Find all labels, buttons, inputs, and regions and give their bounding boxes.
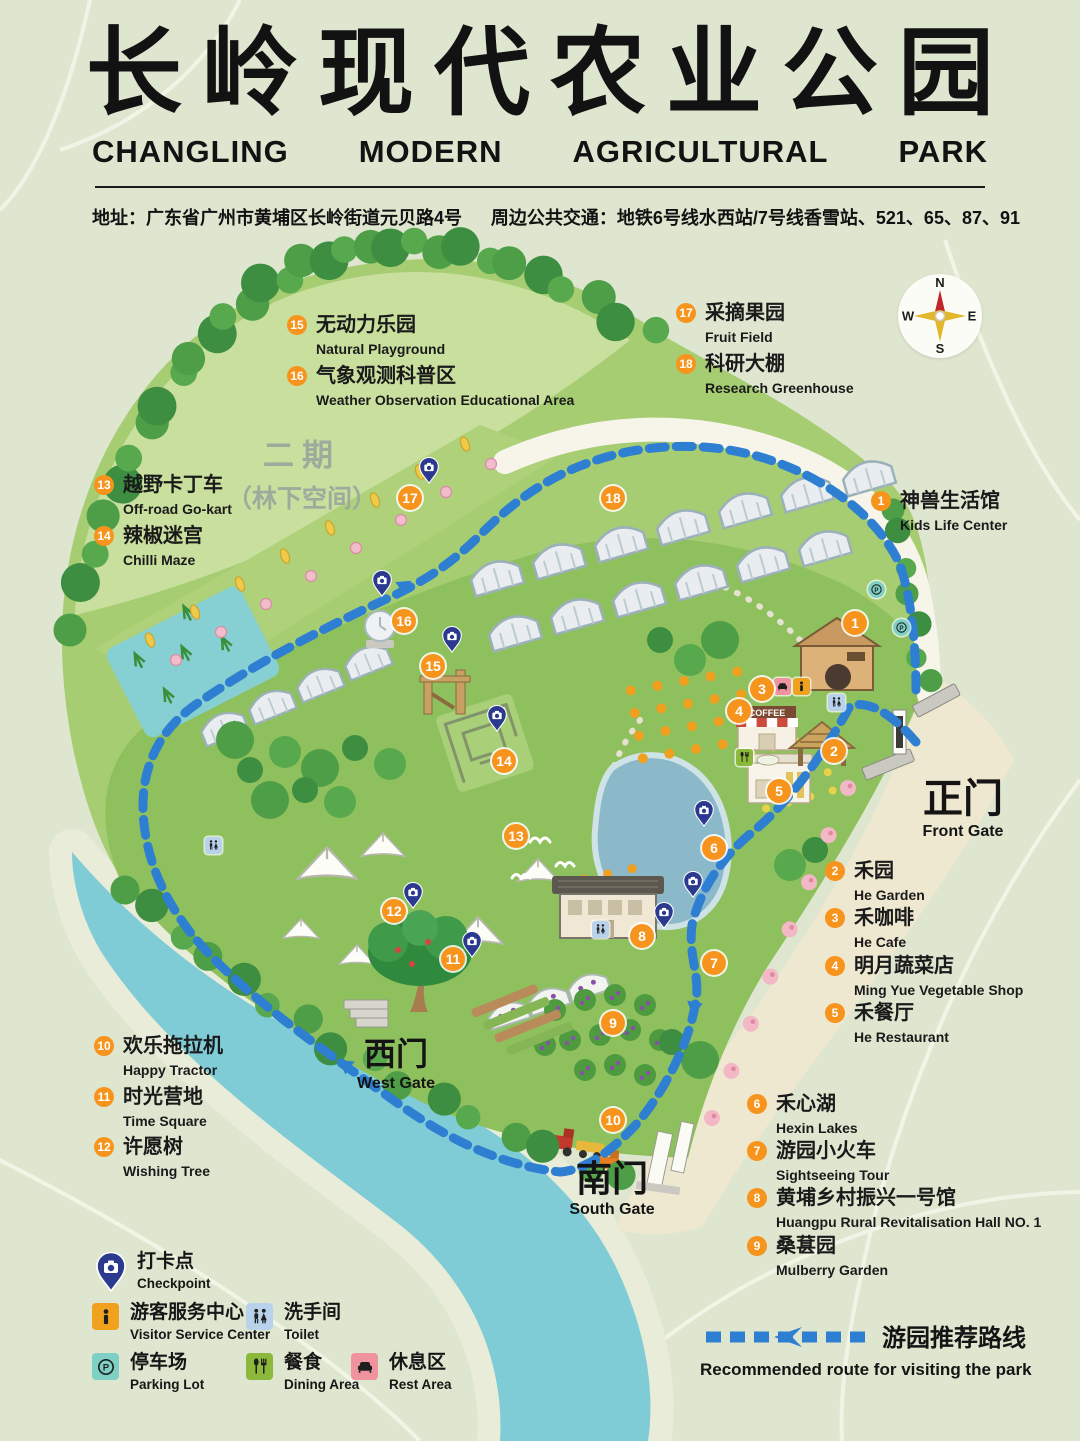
svg-text:P: P — [874, 587, 878, 594]
subtitle-word: PARK — [898, 134, 988, 170]
poi-number-badge: 4 — [825, 956, 845, 976]
poi-name-zh: 游园小火车 — [776, 1141, 889, 1162]
legend-zh: 餐食 — [284, 1353, 359, 1373]
west-gate-zh: 西门 — [357, 1038, 435, 1072]
poi-texts: 禾咖啡He Cafe — [854, 908, 914, 950]
weather-ball — [365, 611, 395, 648]
subtitle-word: CHANGLING — [92, 134, 289, 170]
poi-number-badge: 18 — [676, 354, 696, 374]
front-gate-label: 正门 Front Gate — [923, 778, 1004, 841]
title-char: 公 — [782, 26, 878, 122]
poi-label-15: 15无动力乐园Natural Playground — [287, 315, 445, 357]
poi-name-zh: 禾咖啡 — [854, 908, 914, 929]
page-title: 长岭现代农业公园 — [86, 26, 994, 122]
poi-texts: 气象观测科普区Weather Observation Educational A… — [316, 366, 574, 408]
south-gate-en: South Gate — [569, 1201, 654, 1219]
map-marker-10: 10 — [601, 1108, 625, 1132]
title-char: 农 — [550, 26, 646, 122]
legend-item-checkpoint: 打卡点Checkpoint — [96, 1252, 211, 1297]
title-char: 现 — [318, 26, 414, 122]
map-rest-icon — [774, 678, 791, 695]
poi-number-badge: 7 — [747, 1141, 767, 1161]
legend-item-visitor-service-center: 游客服务中心Visitor Service Center — [92, 1303, 270, 1342]
poi-label-4: 4明月蔬菜店Ming Yue Vegetable Shop — [825, 956, 1023, 998]
legend-texts: 休息区Rest Area — [389, 1353, 452, 1392]
map-toilet-icon — [592, 921, 609, 938]
poi-name-zh: 禾心湖 — [776, 1094, 858, 1115]
subtitle-word: MODERN — [359, 134, 503, 170]
poi-name-zh: 采摘果园 — [705, 303, 785, 324]
map-marker-13: 13 — [504, 824, 528, 848]
map-marker-3: 3 — [750, 677, 774, 701]
svg-text:P: P — [899, 625, 903, 632]
poi-label-3: 3禾咖啡He Cafe — [825, 908, 914, 950]
header-divider — [95, 186, 985, 188]
poi-label-5: 5禾餐厅He Restaurant — [825, 1003, 949, 1045]
compass-n-label: N — [935, 275, 944, 290]
checkpoint-pin — [372, 570, 392, 602]
address-text: 地址：广东省广州市黄埔区长岭街道元贝路4号 — [92, 204, 462, 230]
compass-w-label: W — [902, 309, 915, 324]
route-legend-en: Recommended route for visiting the park — [700, 1360, 1015, 1380]
map-parking-icon: P — [868, 581, 885, 598]
map-marker-6: 6 — [702, 836, 726, 860]
west-gate-label: 西门 West Gate — [357, 1038, 435, 1093]
map-marker-11: 11 — [441, 947, 465, 971]
poi-name-zh: 禾餐厅 — [854, 1003, 949, 1024]
poi-texts: 许愿树Wishing Tree — [123, 1137, 210, 1179]
dining-icon — [246, 1353, 273, 1380]
checkpoint-pin — [442, 626, 462, 658]
poi-name-en: Chilli Maze — [123, 552, 203, 568]
poi-label-1: 1神兽生活馆Kids Life Center — [871, 491, 1007, 533]
poi-number-badge: 12 — [94, 1137, 114, 1157]
poi-name-zh: 辣椒迷宫 — [123, 526, 203, 547]
poi-label-11: 11时光营地Time Square — [94, 1087, 207, 1129]
legend-item-dining-area: 餐食Dining Area — [246, 1353, 359, 1392]
legend-zh: 洗手间 — [284, 1303, 341, 1323]
poi-name-en: Happy Tractor — [123, 1062, 223, 1078]
poi-number-badge: 6 — [747, 1094, 767, 1114]
header-info: 地址：广东省广州市黄埔区长岭街道元贝路4号 周边公共交通：地铁6号线水西站/7号… — [92, 204, 1020, 230]
poi-label-17: 17采摘果园Fruit Field — [676, 303, 785, 345]
compass-e-label: E — [968, 309, 977, 324]
poi-name-en: Research Greenhouse — [705, 380, 854, 396]
poi-name-zh: 桑葚园 — [776, 1236, 888, 1257]
poi-texts: 越野卡丁车Off-road Go-kart — [123, 475, 232, 517]
legend-en: Parking Lot — [130, 1377, 204, 1392]
phase2-label: 二期 （林下空间） — [227, 430, 377, 515]
legend-en: Rest Area — [389, 1377, 452, 1392]
checkpoint-legend-icon — [96, 1252, 126, 1297]
legend-texts: 餐食Dining Area — [284, 1353, 359, 1392]
coffee-sign: COFFEE — [749, 708, 786, 718]
poi-name-en: He Cafe — [854, 934, 914, 950]
poi-name-en: Weather Observation Educational Area — [316, 392, 574, 408]
checkpoint-pin — [694, 800, 714, 832]
map-marker-7: 7 — [702, 951, 726, 975]
checkpoint-pin — [683, 871, 703, 903]
transit-text: 周边公共交通：地铁6号线水西站/7号线香雪站、521、65、87、91 — [491, 204, 1020, 230]
checkpoint-pin — [419, 457, 439, 489]
map-marker-16: 16 — [392, 609, 416, 633]
poi-name-en: Off-road Go-kart — [123, 501, 232, 517]
poi-name-en: Time Square — [123, 1113, 207, 1129]
map-marker-5: 5 — [767, 779, 791, 803]
poi-texts: 明月蔬菜店Ming Yue Vegetable Shop — [854, 956, 1023, 998]
poi-name-zh: 欢乐拖拉机 — [123, 1036, 223, 1057]
poi-number-badge: 1 — [871, 491, 891, 511]
poi-name-zh: 越野卡丁车 — [123, 475, 232, 496]
legend-zh: 停车场 — [130, 1353, 204, 1373]
poi-number-badge: 13 — [94, 475, 114, 495]
poi-label-6: 6禾心湖Hexin Lakes — [747, 1094, 858, 1136]
checkpoint-pin — [403, 882, 423, 914]
poi-texts: 禾心湖Hexin Lakes — [776, 1094, 858, 1136]
poi-name-en: Fruit Field — [705, 329, 785, 345]
poi-name-zh: 许愿树 — [123, 1137, 210, 1158]
map-marker-18: 18 — [601, 486, 625, 510]
poi-name-zh: 无动力乐园 — [316, 315, 445, 336]
poi-name-zh: 禾园 — [854, 861, 925, 882]
legend-item-toilet: 洗手间Toilet — [246, 1303, 341, 1342]
poi-label-7: 7游园小火车Sightseeing Tour — [747, 1141, 889, 1183]
poi-name-en: He Garden — [854, 887, 925, 903]
poi-texts: 禾园He Garden — [854, 861, 925, 903]
legend-en: Toilet — [284, 1327, 341, 1342]
map-marker-1: 1 — [843, 611, 867, 635]
poi-name-zh: 科研大棚 — [705, 354, 854, 375]
poi-name-en: Natural Playground — [316, 341, 445, 357]
map-marker-4: 4 — [727, 699, 751, 723]
poi-texts: 黄埔乡村振兴一号馆Huangpu Rural Revitalisation Ha… — [776, 1188, 1041, 1230]
poi-number-badge: 16 — [287, 366, 307, 386]
poi-label-18: 18科研大棚Research Greenhouse — [676, 354, 854, 396]
poi-number-badge: 8 — [747, 1188, 767, 1208]
poi-number-badge: 14 — [94, 526, 114, 546]
poi-label-16: 16气象观测科普区Weather Observation Educational… — [287, 366, 574, 408]
poi-number-badge: 5 — [825, 1003, 845, 1023]
map-toilet-icon — [205, 837, 222, 854]
svg-text:P: P — [102, 1362, 109, 1373]
map-toilet-icon — [828, 694, 845, 711]
legend-texts: 停车场Parking Lot — [130, 1353, 204, 1392]
legend-texts: 洗手间Toilet — [284, 1303, 341, 1342]
poi-label-13: 13越野卡丁车Off-road Go-kart — [94, 475, 232, 517]
route-legend-zh: 游园推荐路线 — [882, 1318, 1026, 1353]
south-gate-label: 南门 South Gate — [569, 1160, 654, 1219]
parking-icon: P — [92, 1353, 119, 1380]
rest-icon — [351, 1353, 378, 1380]
route-arrow-icon — [774, 1327, 802, 1347]
poi-texts: 辣椒迷宫Chilli Maze — [123, 526, 203, 568]
poi-name-en: Huangpu Rural Revitalisation Hall NO. 1 — [776, 1214, 1041, 1230]
legend-item-parking-lot: P停车场Parking Lot — [92, 1353, 204, 1392]
poi-name-en: Mulberry Garden — [776, 1262, 888, 1278]
poi-number-badge: 11 — [94, 1087, 114, 1107]
poi-name-zh: 神兽生活馆 — [900, 491, 1007, 512]
poi-texts: 无动力乐园Natural Playground — [316, 315, 445, 357]
park-map-poster: COFFEE — [0, 0, 1080, 1441]
poi-texts: 时光营地Time Square — [123, 1087, 207, 1129]
poi-label-2: 2禾园He Garden — [825, 861, 925, 903]
west-gate-en: West Gate — [357, 1075, 435, 1093]
title-char: 业 — [666, 26, 762, 122]
map-info-icon — [793, 678, 810, 695]
poi-name-zh: 气象观测科普区 — [316, 366, 574, 387]
map-parking-icon: P — [893, 619, 910, 636]
poi-name-zh: 明月蔬菜店 — [854, 956, 1023, 977]
poi-name-zh: 黄埔乡村振兴一号馆 — [776, 1188, 1041, 1209]
compass-s-label: S — [936, 341, 945, 356]
legend-item-rest-area: 休息区Rest Area — [351, 1353, 452, 1392]
page-subtitle: CHANGLINGMODERNAGRICULTURALPARK — [92, 134, 988, 170]
map-marker-9: 9 — [601, 1011, 625, 1035]
poi-texts: 桑葚园Mulberry Garden — [776, 1236, 888, 1278]
poi-name-en: Ming Yue Vegetable Shop — [854, 982, 1023, 998]
legend-texts: 打卡点Checkpoint — [137, 1252, 211, 1291]
poi-name-en: He Restaurant — [854, 1029, 949, 1045]
legend-en: Dining Area — [284, 1377, 359, 1392]
poi-number-badge: 2 — [825, 861, 845, 881]
title-char: 代 — [434, 26, 530, 122]
map-marker-2: 2 — [822, 739, 846, 763]
poi-texts: 游园小火车Sightseeing Tour — [776, 1141, 889, 1183]
info-icon — [92, 1303, 119, 1330]
title-char: 园 — [898, 26, 994, 122]
route-legend-line — [702, 1325, 878, 1354]
poi-texts: 科研大棚Research Greenhouse — [705, 354, 854, 396]
subtitle-word: AGRICULTURAL — [573, 134, 829, 170]
poi-name-en: Wishing Tree — [123, 1163, 210, 1179]
poi-texts: 神兽生活馆Kids Life Center — [900, 491, 1007, 533]
title-char: 岭 — [202, 26, 298, 122]
poi-texts: 禾餐厅He Restaurant — [854, 1003, 949, 1045]
map-marker-15: 15 — [421, 654, 445, 678]
poi-number-badge: 17 — [676, 303, 696, 323]
checkpoint-pin — [462, 931, 482, 963]
front-gate-zh: 正门 — [923, 778, 1004, 820]
poi-label-12: 12许愿树Wishing Tree — [94, 1137, 210, 1179]
poi-name-en: Sightseeing Tour — [776, 1167, 889, 1183]
toilet-icon — [246, 1303, 273, 1330]
checkpoint-pin — [654, 902, 674, 934]
map-marker-17: 17 — [398, 486, 422, 510]
poi-texts: 采摘果园Fruit Field — [705, 303, 785, 345]
map-dining-icon — [736, 749, 753, 766]
title-char: 长 — [86, 26, 182, 122]
poi-texts: 欢乐拖拉机Happy Tractor — [123, 1036, 223, 1078]
front-gate-en: Front Gate — [923, 823, 1004, 841]
map-marker-14: 14 — [492, 749, 516, 773]
poi-label-9: 9桑葚园Mulberry Garden — [747, 1236, 888, 1278]
poi-number-badge: 3 — [825, 908, 845, 928]
legend-zh: 休息区 — [389, 1353, 452, 1373]
poi-number-badge: 15 — [287, 315, 307, 335]
poi-label-8: 8黄埔乡村振兴一号馆Huangpu Rural Revitalisation H… — [747, 1188, 1041, 1230]
legend-zh: 打卡点 — [137, 1252, 211, 1272]
checkpoint-pin — [487, 705, 507, 737]
poi-name-en: Hexin Lakes — [776, 1120, 858, 1136]
compass: N W E S — [898, 274, 982, 358]
poi-label-10: 10欢乐拖拉机Happy Tractor — [94, 1036, 223, 1078]
poi-number-badge: 10 — [94, 1036, 114, 1056]
map-marker-8: 8 — [630, 924, 654, 948]
poi-label-14: 14辣椒迷宫Chilli Maze — [94, 526, 203, 568]
phase2-line2: （林下空间） — [227, 479, 377, 515]
poi-name-zh: 时光营地 — [123, 1087, 207, 1108]
south-gate-zh: 南门 — [569, 1160, 654, 1198]
map-marker-12: 12 — [382, 899, 406, 923]
phase2-line1: 二期 — [227, 430, 377, 475]
poi-name-en: Kids Life Center — [900, 517, 1007, 533]
legend-en: Checkpoint — [137, 1276, 211, 1291]
poi-number-badge: 9 — [747, 1236, 767, 1256]
